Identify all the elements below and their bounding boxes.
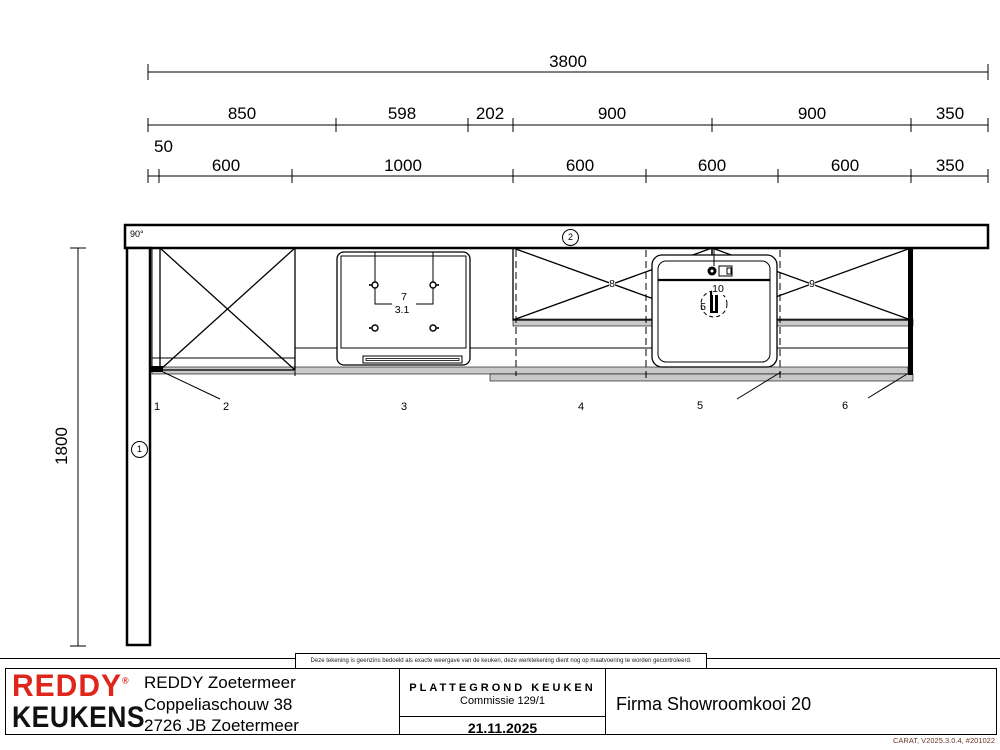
dim-lower-1: 600 — [212, 156, 240, 176]
dim-upper-1: 850 — [228, 104, 256, 124]
dim-upper-2: 598 — [388, 104, 416, 124]
dim-upper-6: 350 — [936, 104, 964, 124]
dim-lower-5: 600 — [831, 156, 859, 176]
wall-tag-left: 1 — [131, 441, 148, 458]
dim-upper-4: 900 — [598, 104, 626, 124]
cabinet-number-3: 3 — [400, 401, 408, 413]
countertop-strips — [152, 319, 913, 381]
item-label-wall-cab-left: 8 — [609, 279, 615, 290]
dim-lower-2: 1000 — [384, 156, 422, 176]
kitchen-plan-page: 3800 850 598 202 900 900 350 50 600 1000… — [0, 0, 1000, 750]
item-label-faucet: 10 — [712, 284, 724, 295]
dealer-address-line1: REDDY Zoetermeer — [144, 672, 299, 694]
item-label-wall-cab-right: 9 — [809, 279, 815, 290]
reddy-keukens-logo: REDDY® KEUKENS — [12, 671, 145, 730]
wall-top — [125, 225, 988, 248]
dimension-lines — [70, 64, 988, 646]
title-block-divider-3 — [399, 716, 605, 717]
item-label-sink: 5 — [700, 302, 706, 313]
cabinet-number-4: 4 — [577, 401, 585, 413]
corner-angle: 90° — [130, 229, 144, 239]
registered-mark: ® — [122, 675, 129, 686]
dim-offset: 50 — [154, 137, 173, 157]
tall-cabinet-x — [160, 248, 295, 370]
cabinet-number-5: 5 — [696, 400, 704, 412]
software-version: CARAT, V2025.3.0.4, #201022 — [893, 736, 995, 745]
cabinet-number-1: 1 — [153, 401, 161, 413]
dealer-address-line3: 2726 JB Zoetermeer — [144, 715, 299, 737]
document-date: 21.11.2025 — [400, 720, 605, 736]
base-cabinets — [152, 248, 908, 367]
cabinet-number-6: 6 — [841, 400, 849, 412]
logo-keukens-text: KEUKENS — [12, 703, 145, 732]
dim-lower-4: 600 — [698, 156, 726, 176]
dealer-address: REDDY Zoetermeer Coppeliaschouw 38 2726 … — [144, 672, 299, 737]
item-label-hob-sub: 3.1 — [395, 305, 410, 316]
customer-name: Firma Showroomkooi 20 — [616, 694, 811, 715]
dim-upper-5: 900 — [798, 104, 826, 124]
cabinet-number-2: 2 — [222, 401, 230, 413]
dim-total: 3800 — [549, 52, 587, 72]
dim-lower-3: 600 — [566, 156, 594, 176]
logo-reddy-text: REDDY® — [12, 671, 145, 703]
document-type: PLATTEGROND KEUKEN — [400, 682, 605, 694]
filler-block — [151, 366, 163, 372]
sink — [652, 248, 777, 367]
title-block: REDDY® KEUKENS REDDY Zoetermeer Coppelia… — [5, 668, 997, 735]
title-block-divider-2 — [605, 669, 606, 734]
wall-tag-top: 2 — [562, 229, 579, 246]
dim-upper-3: 202 — [476, 104, 504, 124]
dim-left-wall: 1800 — [52, 416, 72, 476]
item-label-hob: 7 — [401, 292, 407, 303]
dealer-address-line2: Coppeliaschouw 38 — [144, 694, 299, 716]
dim-lower-6: 350 — [936, 156, 964, 176]
commission-number: Commissie 129/1 — [400, 695, 605, 707]
